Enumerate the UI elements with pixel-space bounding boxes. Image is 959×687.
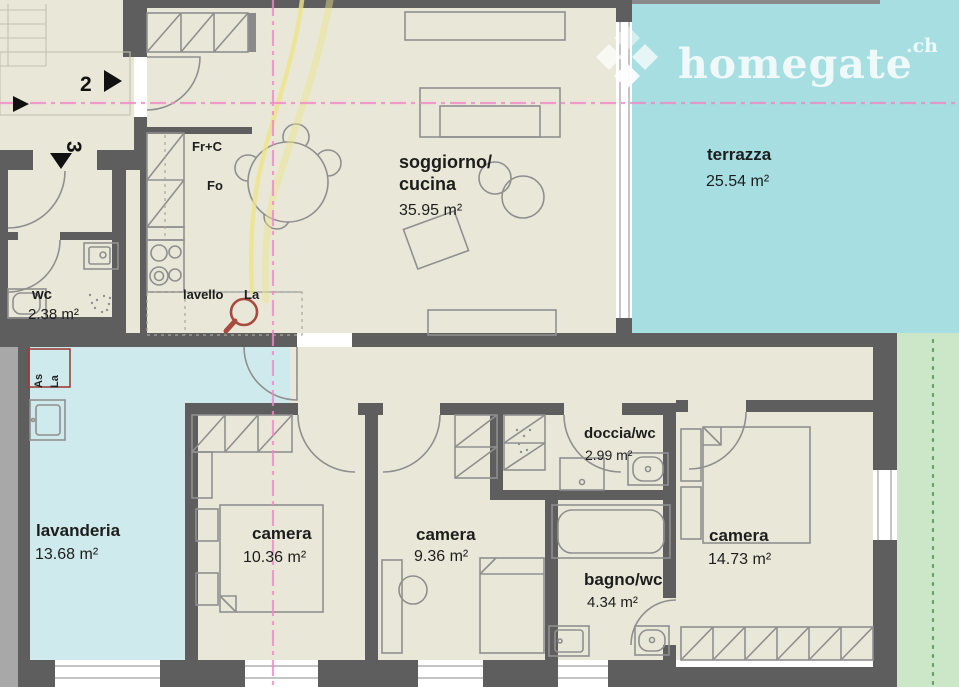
wall-segment: [160, 660, 245, 687]
room-area-soggiorno: 35.95 m²: [399, 202, 463, 219]
window: [558, 660, 608, 687]
window: [245, 660, 318, 687]
wall-segment: [0, 150, 33, 170]
homegate-logo-wordmark: homegate: [678, 40, 913, 88]
room-area-bagno: 4.34 m²: [587, 594, 638, 611]
wall-segment: [123, 0, 147, 57]
wall-segment: [625, 333, 897, 347]
room-area-terrazza: 25.54 m²: [706, 173, 770, 190]
laundry-floor: [30, 347, 185, 660]
wall-segment: [873, 540, 897, 667]
kitchen-label-sink: lavello: [183, 287, 224, 302]
kitchen-label-oven: Fo: [207, 178, 223, 193]
wall-segment: [60, 232, 112, 240]
wall-segment: [140, 127, 147, 335]
laundry-label-washer: La: [49, 374, 61, 388]
room-label-camera1: camera: [252, 524, 312, 543]
unit-marker-3: 3: [62, 141, 85, 153]
window: [418, 660, 483, 687]
floorplan-drawing: terrazza 25.54 m² soggiorno/ cucina 35.9…: [0, 0, 959, 687]
room-label-wc: wc: [31, 286, 52, 303]
wall-segment: [440, 403, 490, 415]
room-label-soggiorno-2: cucina: [399, 174, 457, 194]
room-label-bagno: bagno/wc: [584, 570, 662, 589]
wall-segment: [632, 0, 880, 4]
wall-segment: [676, 400, 688, 412]
room-label-lavanderia: lavanderia: [36, 521, 121, 540]
wall-segment: [490, 490, 676, 500]
floorplan-page: terrazza 25.54 m² soggiorno/ cucina 35.9…: [0, 0, 959, 687]
wall-segment: [123, 0, 632, 8]
room-label-terrazza: terrazza: [707, 145, 772, 164]
unit-marker-2: 2: [80, 73, 92, 96]
wall-segment: [616, 8, 632, 22]
wall-segment: [248, 13, 256, 52]
laundry-label-dryer: As: [33, 374, 45, 388]
wall-segment: [97, 150, 147, 170]
wall-segment: [873, 347, 897, 470]
homegate-logo-tld: .ch: [906, 35, 938, 57]
wall-segment: [663, 403, 676, 490]
living-floor: [134, 0, 632, 333]
room-label-camera2: camera: [416, 525, 476, 544]
window: [55, 660, 160, 687]
wall-segment: [112, 170, 126, 333]
room-label-camera3: camera: [709, 526, 769, 545]
wall-segment: [18, 660, 55, 687]
room-label-doccia: doccia/wc: [584, 425, 656, 442]
wall-segment: [358, 403, 383, 415]
kitchen-label-fridge: Fr+C: [192, 139, 223, 154]
room-area-camera3: 14.73 m²: [708, 551, 772, 568]
garden-strip: [895, 333, 959, 687]
wall-segment: [490, 403, 564, 415]
window: [873, 470, 897, 540]
room-area-camera1: 10.36 m²: [243, 549, 307, 566]
room-area-camera2: 9.36 m²: [414, 548, 469, 565]
wall-segment: [365, 415, 378, 660]
room-area-wc: 2.38 m²: [28, 306, 79, 323]
outside-strip: [0, 333, 18, 687]
room-label-soggiorno-1: soggiorno/: [399, 152, 492, 172]
door-opening: [134, 57, 147, 117]
room-area-doccia: 2.99 m²: [585, 447, 633, 463]
wall-segment: [0, 170, 8, 333]
room-area-lavanderia: 13.68 m²: [35, 546, 99, 563]
wall-segment: [483, 660, 558, 687]
wall-segment: [185, 403, 298, 415]
kitchen-label-sink-abbr: La: [244, 287, 260, 302]
wall-segment: [608, 660, 676, 687]
wall-segment: [746, 400, 873, 412]
wall-segment: [0, 232, 18, 240]
wall-segment: [318, 660, 418, 687]
wall-segment: [676, 667, 897, 687]
